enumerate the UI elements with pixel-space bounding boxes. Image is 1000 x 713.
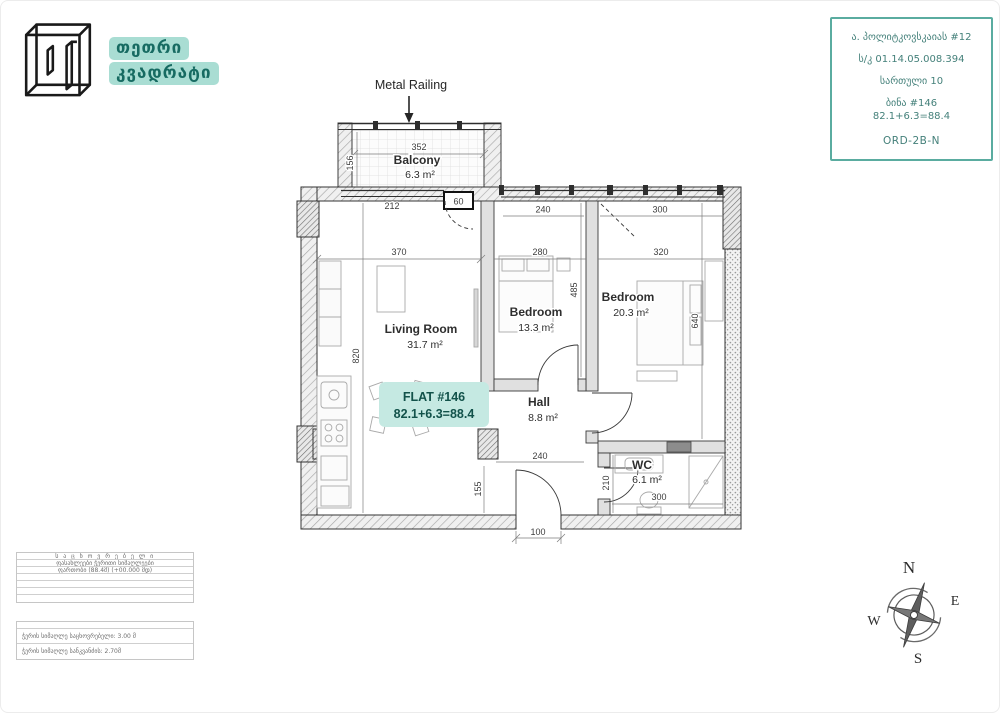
flat-badge: FLAT #146 82.1+6.3=88.4 [379,382,489,427]
dim-living-depth: 820 [351,348,361,363]
living-room-area: 31.7 m² [407,339,443,351]
dim-balcony-width: 352 [411,142,426,152]
compass-west-label: W [867,614,881,629]
legend-table-areas: ს ა ც ხ ო ვ რ ე ბ ე ლ ი ფასახლეები ჭერით… [16,552,194,603]
bedroom2-area: 20.3 m² [613,307,649,319]
balcony-area: 6.3 m² [405,169,435,181]
dim-bed1-depth: 485 [569,282,579,297]
dim-balcony-door: 60 [453,197,463,207]
legend-row [17,622,193,629]
dim-living-width: 370 [391,247,406,257]
compass-east-label: E [951,594,960,609]
dim-bed2-window: 300 [652,205,667,215]
project-info-card: ა. პოლიტკოვსკაიას #12 ს/კ 01.14.05.008.3… [830,17,993,161]
compass-south-label: S [914,651,922,667]
area-sum: 82.1+6.3=88.4 [832,111,991,123]
floor-plan-sheet: თეთრი კვადრატი ა. პოლიტკოვსკაიას #12 ს/კ… [0,0,1000,713]
metal-railing-label: Metal Railing [375,78,447,92]
dim-hall-niche: 155 [473,481,483,496]
dim-bed1-width: 280 [532,247,547,257]
dim-entrance-width: 100 [530,527,545,537]
flat-badge-area: 82.1+6.3=88.4 [394,407,475,421]
compass-north-label: N [903,558,915,577]
wc-area: 6.1 m² [632,474,662,486]
flat-badge-title: FLAT #146 [403,390,465,404]
brand-logo-icon [15,13,101,105]
cadastral-code: ს/კ 01.14.05.008.394 [832,54,991,66]
legend-row: ფასახლეები ჭერითი სიმაღლეები [17,560,193,567]
dim-bed1-window: 240 [535,205,550,215]
legend-row: ჭერის სიმაღლე საცხოვრებელი: 3.00 მ [17,629,193,644]
bedroom1-label: Bedroom [510,305,563,319]
dim-wc-width: 300 [651,492,666,502]
compass-rose: N E S W [867,557,962,667]
floor-plan-drawing: Metal Railing [279,76,761,558]
legend-table-heights: ჭერის სიმაღლე საცხოვრებელი: 3.00 მ ჭერის… [16,621,194,660]
dim-wc-depth: 210 [601,475,611,490]
type-code: ORD-2B-N [832,135,991,147]
legend-row: ს ა ც ხ ო ვ რ ე ბ ე ლ ი [17,553,193,560]
bedroom1-area: 13.3 m² [518,322,554,334]
legend-row [17,574,193,581]
dim-bed2-width: 320 [653,247,668,257]
floor-number: სართული 10 [832,76,991,88]
legend-row [17,595,193,602]
legend-row [17,588,193,595]
address-line: ა. პოლიტკოვსკაიას #12 [832,32,991,44]
down-arrow-icon [405,96,414,123]
hall-label: Hall [528,395,550,409]
dim-balcony-wall: 212 [384,201,399,211]
wc-label: WC [632,458,652,472]
legend-row: ჭერის სიმაღლე სანკვანძის: 2.70მ [17,644,193,659]
dim-hall-width: 240 [532,451,547,461]
dim-balcony-depth: 156 [345,155,355,170]
hall-area: 8.8 m² [528,412,558,424]
living-room-label: Living Room [385,322,458,336]
balcony-label: Balcony [394,153,441,167]
brand-name-line2: კვადრატი [109,62,219,85]
brand-name: თეთრი კვადრატი [109,37,219,85]
legend-row [17,581,193,588]
flat-number: ბინა #146 [832,98,991,110]
legend-row: ფართობი (88.4მ) (+00.000 მდ) [17,567,193,574]
dim-bed2-depth: 640 [690,313,700,328]
brand-name-line1: თეთრი [109,37,189,60]
bedroom2-label: Bedroom [602,290,655,304]
